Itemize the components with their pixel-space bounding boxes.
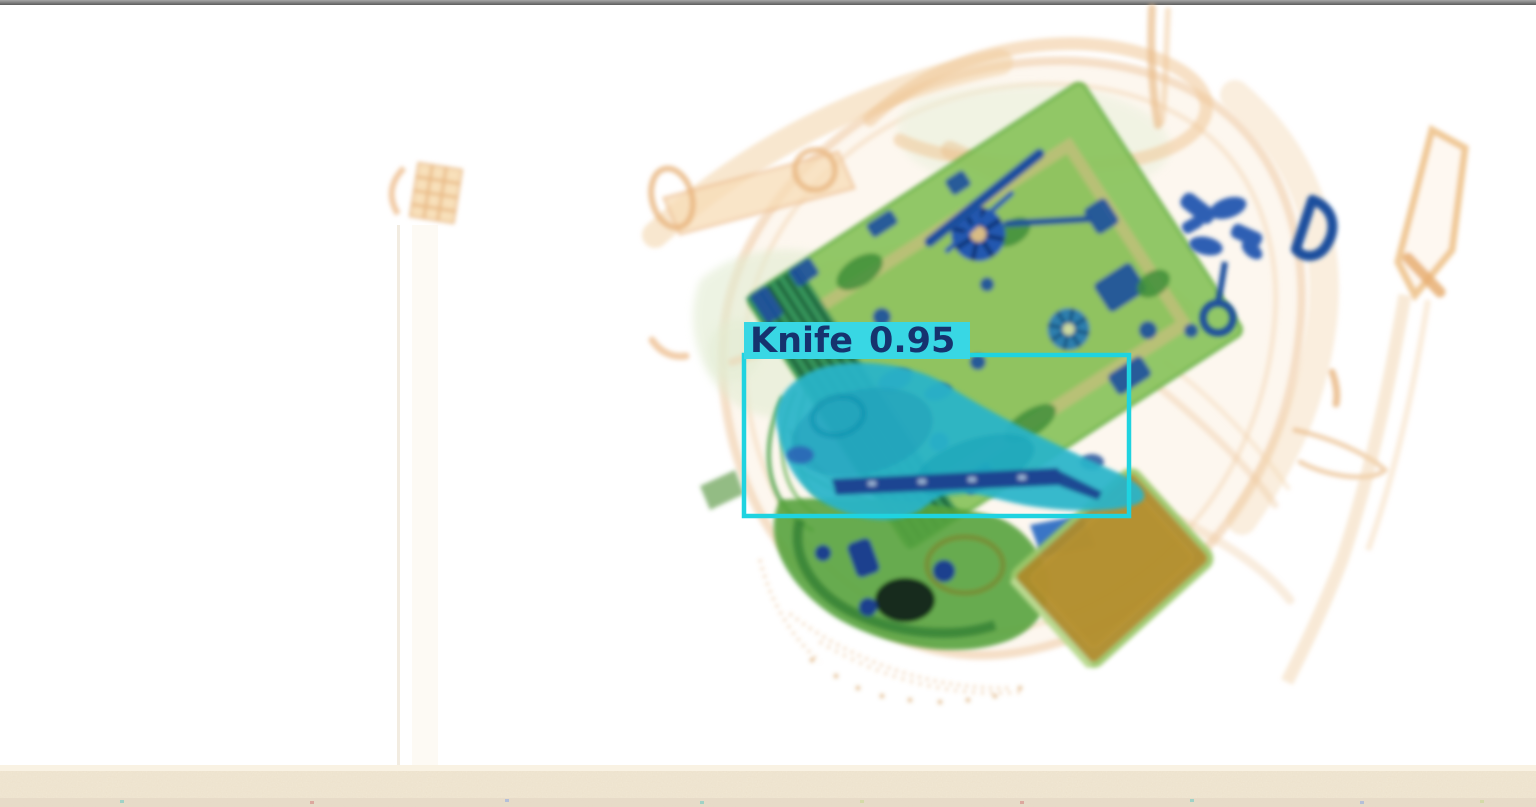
detection-class-text: Knife xyxy=(750,321,853,361)
small-organic-items xyxy=(392,163,462,223)
detection-confidence-text: 0.95 xyxy=(869,321,955,361)
xray-scan-image: Knife0.95 xyxy=(0,0,1536,807)
detection-label: Knife0.95 xyxy=(750,321,955,361)
belt-guide-band xyxy=(412,225,438,765)
belt-guide-line xyxy=(397,225,400,765)
xray-scanner-screen: Knife0.95 xyxy=(0,0,1536,807)
conveyor-belt-strip xyxy=(0,765,1536,807)
